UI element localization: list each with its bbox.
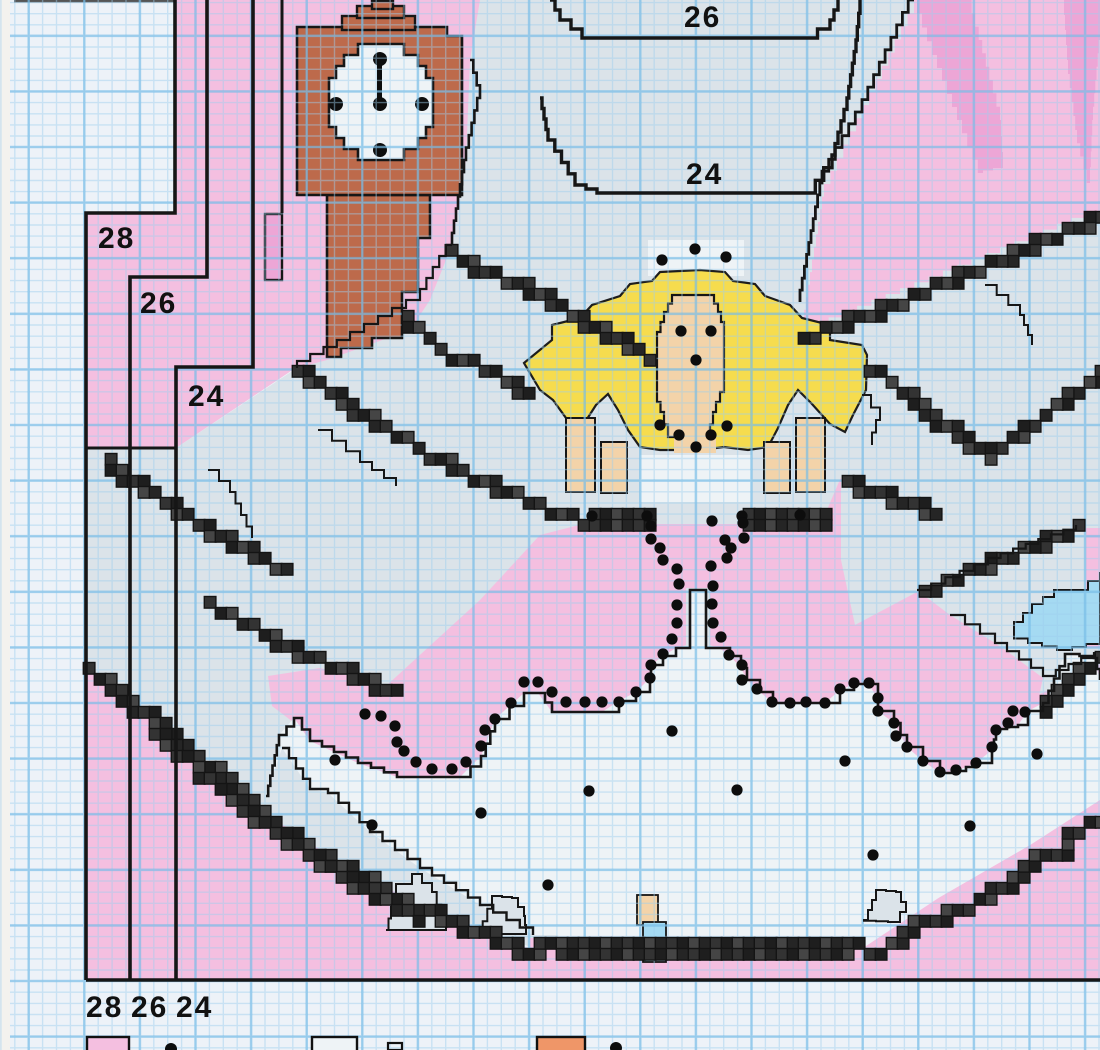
svg-text:28: 28 (98, 222, 135, 255)
svg-text:24: 24 (176, 991, 213, 1024)
svg-text:24: 24 (686, 158, 723, 191)
svg-text:24: 24 (188, 380, 225, 413)
svg-text:26: 26 (684, 1, 721, 34)
svg-text:28: 28 (86, 991, 123, 1024)
svg-text:26: 26 (131, 991, 168, 1024)
svg-text:26: 26 (140, 287, 177, 320)
